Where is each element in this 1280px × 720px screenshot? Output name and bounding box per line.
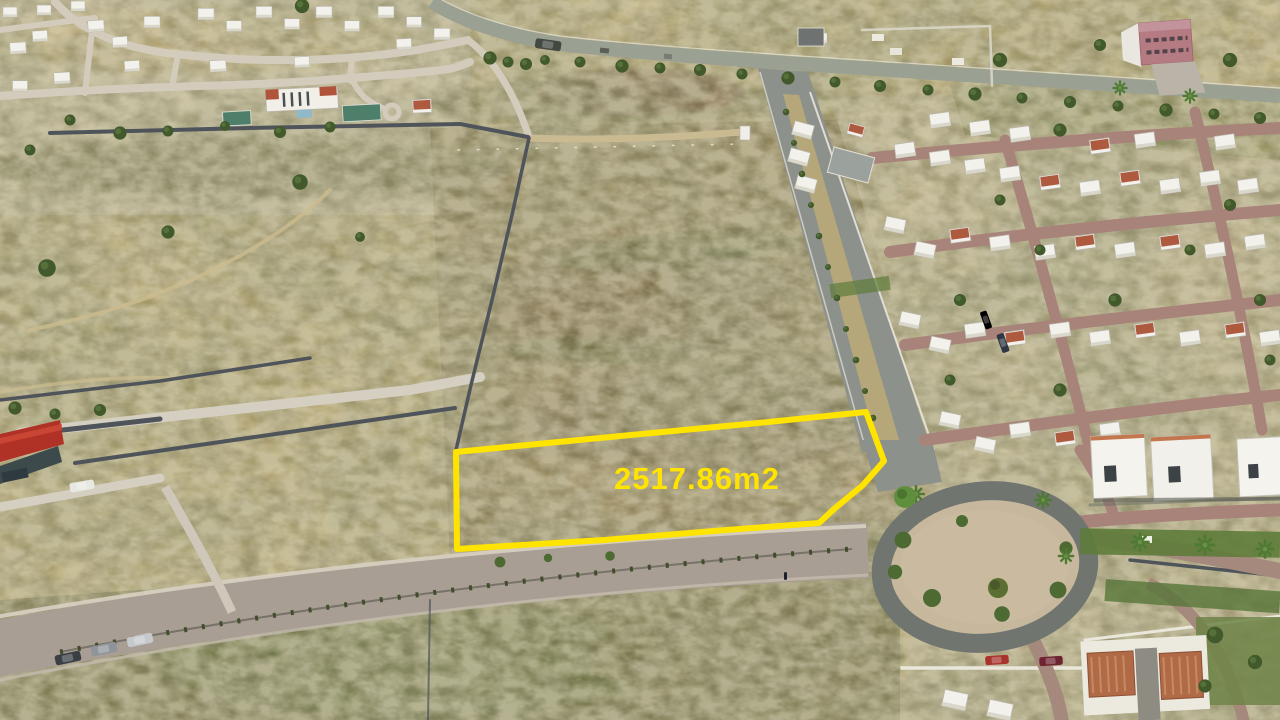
aerial-photo-canvas: 2517.86m2	[0, 0, 1280, 720]
person-on-road	[784, 572, 787, 580]
area-label: 2517.86m2	[614, 461, 780, 496]
townhouses	[1090, 427, 1280, 509]
gatehouse	[1080, 635, 1210, 720]
aerial-photo: 2517.86m2	[0, 0, 1280, 720]
